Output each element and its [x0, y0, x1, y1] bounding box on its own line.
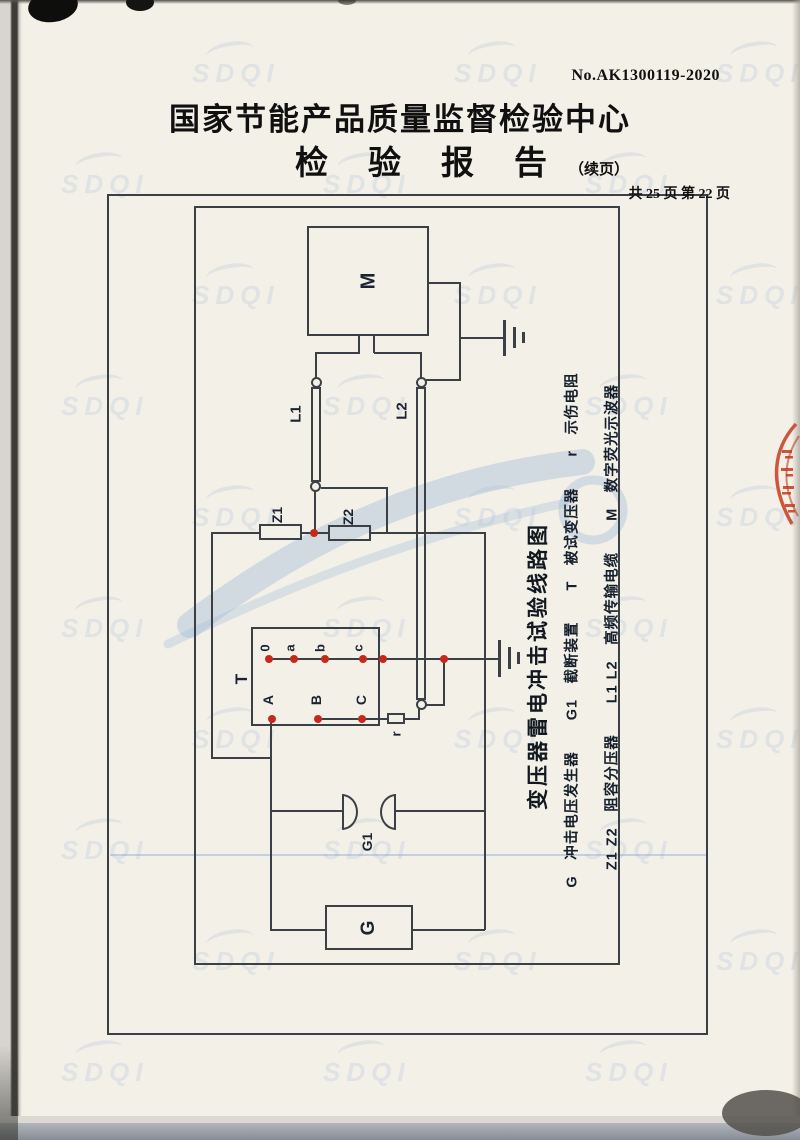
ground-symbol-bar [517, 652, 520, 664]
wire [396, 810, 485, 812]
wire [211, 532, 259, 534]
ground-symbol-bar [508, 647, 511, 669]
wire [270, 929, 325, 931]
terminal-dot-a [290, 655, 298, 663]
label-generator: G [358, 921, 380, 936]
wire [317, 352, 360, 354]
label-resistor-r: r [389, 731, 404, 736]
diagram-caption: 变压器雷电冲击试验线路图 [522, 522, 552, 810]
wire [321, 487, 388, 489]
wire [270, 810, 342, 812]
wire [315, 352, 317, 378]
page-count-info: 共 25 页 第 22 页 [520, 183, 730, 203]
label-terminal-a: a [283, 644, 298, 651]
cable-connector [416, 699, 427, 710]
ground-symbol-bar [498, 640, 501, 677]
terminal-dot-A [268, 715, 276, 723]
label-divider-z2: Z2 [340, 509, 356, 525]
wire [211, 757, 271, 759]
report-title: 检验报告 [295, 146, 587, 182]
terminal-dot-0 [265, 655, 273, 663]
divider-junction-dot [310, 529, 318, 537]
document-number: No.AK1300119-2020 [520, 67, 720, 85]
terminal-dot-c [359, 655, 367, 663]
resistor-r-box [387, 713, 405, 724]
organization-title: 国家节能产品质量监督检验中心 [0, 94, 800, 139]
label-terminal-c: c [351, 644, 366, 651]
legend-line-1: G 冲击电压发生器 G1 截断装置 T 被试变压器 r 示伤电阻 [561, 372, 582, 887]
wire [358, 336, 360, 353]
cable-l1 [311, 387, 321, 482]
ground-symbol-bar [503, 320, 506, 356]
wire-bottom-terminal-line [318, 718, 387, 720]
terminal-dot-B [314, 715, 322, 723]
label-chopping-gap: G1 [359, 833, 375, 852]
label-terminal-A: A [260, 695, 276, 705]
terminal-dot-b [321, 655, 329, 663]
wire [413, 929, 485, 931]
wire-ground-bus [484, 532, 486, 930]
ground-symbol-bar [513, 327, 516, 348]
wire [211, 532, 213, 758]
wire [429, 282, 461, 284]
wire [374, 352, 422, 354]
scanned-report-page: SDQISDQISDQISDQISDQISDQISDQISDQISDQISDQI… [0, 0, 800, 1140]
wire [420, 352, 422, 378]
cable-connector [311, 377, 322, 388]
terminal-dot-box-edge [379, 655, 387, 663]
transformer-box [251, 627, 380, 726]
wire [314, 491, 316, 533]
label-oscilloscope: M [358, 273, 381, 290]
report-title-row: 检验报告（续页） [295, 136, 629, 184]
label-cable-l2: L2 [394, 402, 411, 420]
label-transformer: T [232, 674, 252, 684]
wire [373, 336, 375, 353]
divider-z2-box [328, 525, 371, 541]
cable-connector [416, 377, 427, 388]
junction-dot [440, 655, 448, 663]
label-cable-l1: L1 [288, 405, 305, 423]
wire [461, 337, 503, 339]
terminal-dot-C [358, 715, 366, 723]
report-title-suffix: （续页） [569, 162, 629, 178]
wire-hv-lead [270, 719, 272, 930]
label-terminal-b: b [313, 644, 328, 652]
legend-line-2: Z1 Z2 阻容分压器 L1 L2 高频传输电缆 M 数字荧光示波器 [601, 384, 622, 870]
cable-connector [310, 481, 321, 492]
label-terminal-0: 0 [258, 644, 273, 651]
wire [443, 658, 445, 706]
label-terminal-B: B [308, 695, 324, 705]
cable-l2 [416, 387, 426, 700]
divider-z1-box [259, 524, 302, 540]
label-terminal-C: C [353, 695, 369, 705]
wire [459, 282, 461, 381]
wire [386, 487, 388, 533]
wire [371, 532, 485, 534]
ground-symbol-bar [522, 332, 525, 343]
wire [426, 379, 461, 381]
label-divider-z1: Z1 [269, 507, 285, 523]
